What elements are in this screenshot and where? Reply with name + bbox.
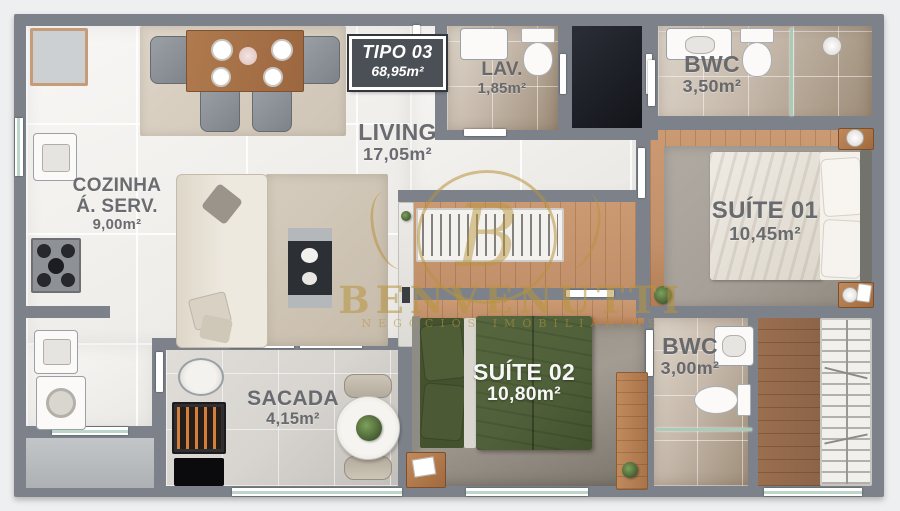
room-label-lav: LAV. 1,85m² (446, 60, 558, 97)
shower-head-icon (822, 36, 842, 56)
unit-type-area: 68,95m² (352, 63, 443, 79)
plate-icon (211, 67, 231, 87)
washing-machine-icon (36, 376, 86, 430)
closet-window (764, 488, 862, 496)
room-label-living: LIVING 17,05m² (340, 120, 455, 164)
grill-coals (177, 407, 221, 449)
table-top (288, 241, 332, 295)
room-area: 1,85m² (446, 81, 558, 97)
unit-type-badge: TIPO 03 68,95m² (349, 36, 446, 90)
balcony-rail-window (232, 488, 402, 496)
plant-icon (356, 415, 382, 441)
room-name: LAV. (446, 60, 558, 81)
tv-icon (402, 287, 410, 303)
photo-frame-icon (856, 283, 872, 303)
shaft (572, 26, 642, 130)
floor-service-balcony (26, 438, 154, 488)
table-shelf (288, 228, 332, 241)
sink-basin (42, 144, 70, 172)
sofa (176, 174, 268, 348)
dining-chair (298, 36, 340, 84)
room-name: SACADA (238, 388, 348, 411)
laundry-sink-icon (34, 330, 78, 374)
suite2-window (466, 488, 588, 496)
suite2-pillow-zone (420, 318, 464, 448)
room-name: SUÍTE 01 (700, 198, 830, 224)
toilet-tank (740, 28, 774, 43)
toilet-bowl (694, 386, 738, 414)
pillow (419, 322, 467, 382)
console-slats (422, 214, 558, 256)
room-label-sacada: SACADA 4,15m² (238, 388, 348, 428)
room-area: 17,05m² (340, 145, 455, 164)
burner (61, 273, 75, 287)
decor-plate-icon (302, 272, 317, 285)
nightstand (406, 452, 446, 488)
suite1-headboard (860, 150, 872, 282)
wall (26, 306, 110, 318)
room-label-bwc2: BWC 3,00m² (642, 334, 738, 378)
bwc1-door (648, 60, 655, 106)
shower-glass (790, 28, 793, 116)
lav-sink-icon (460, 28, 508, 60)
room-name: BWC (642, 334, 738, 359)
burner (37, 244, 51, 258)
room-label-suite2: SUÍTE 02 10,80m² (462, 360, 586, 406)
grill-firebox (174, 458, 224, 486)
wall (398, 190, 646, 202)
washer-door (46, 388, 76, 418)
plate-icon (211, 39, 233, 61)
room-label-cozinha: COZINHA Á. SERV. 9,00m² (52, 176, 182, 233)
plate-icon (271, 39, 293, 61)
unit-type-title: TIPO 03 (352, 42, 443, 63)
floor-plan: COZINHA Á. SERV. 9,00m² LIVING 17,05m² L… (0, 0, 900, 511)
floor-closet-corridor (758, 318, 820, 486)
coffee-table (288, 228, 332, 308)
toilet-tank (521, 28, 555, 43)
burner (61, 244, 75, 258)
plant-icon (401, 211, 411, 221)
bwc2-toilet-icon (694, 384, 750, 414)
dining-chair (252, 86, 292, 132)
toilet-tank (737, 384, 751, 416)
sacada-door (156, 352, 163, 392)
room-area: 3,00m² (642, 359, 738, 378)
decor-plate-icon (301, 248, 318, 263)
suite2-door (566, 290, 614, 297)
kitchen-window (15, 118, 23, 176)
room-area: 3,50m² (660, 77, 764, 96)
room-name: COZINHA (52, 176, 182, 197)
suite1-door (638, 148, 645, 198)
wardrobe (820, 318, 872, 486)
wardrobe-divider (846, 320, 848, 484)
round-sink-icon (178, 358, 224, 396)
burner (37, 273, 51, 287)
plant-icon (654, 286, 672, 304)
burner (48, 258, 64, 274)
dining-chair (200, 86, 240, 132)
room-area: 4,15m² (238, 411, 348, 429)
stove-icon (31, 238, 81, 293)
room-label-suite1: SUÍTE 01 10,45m² (700, 198, 830, 244)
pillow (420, 382, 467, 441)
room-name: BWC (660, 52, 764, 77)
lamp-icon (846, 129, 864, 147)
plant-icon (622, 462, 638, 478)
lav-door (464, 129, 506, 136)
kitchen-sink-icon (33, 133, 77, 181)
kitchen-counter-icon (30, 28, 88, 86)
room-label-bwc1: BWC 3,50m² (660, 52, 764, 96)
sideboard-console (416, 208, 564, 262)
shaft-door-left (560, 54, 566, 94)
room-area: 9,00m² (52, 217, 182, 233)
room-area: 10,80m² (462, 385, 586, 406)
sofa-pillow (199, 314, 233, 344)
plate-icon (263, 67, 283, 87)
sofa-pillow (201, 183, 243, 225)
room-name: SUÍTE 02 (462, 360, 586, 385)
room-name: LIVING (340, 120, 455, 145)
room-name-2: Á. SERV. (52, 197, 182, 218)
balcony-chair (344, 374, 392, 398)
photo-frame-icon (412, 456, 437, 477)
shower-glass (656, 428, 752, 431)
centerpiece-flower-icon (239, 47, 257, 65)
table-shelf (288, 295, 332, 308)
grill-icon (172, 402, 226, 454)
sink-basin (43, 339, 71, 365)
suite2-headboard (412, 316, 420, 450)
dining-table (186, 30, 304, 92)
room-area: 10,45m² (700, 224, 830, 244)
